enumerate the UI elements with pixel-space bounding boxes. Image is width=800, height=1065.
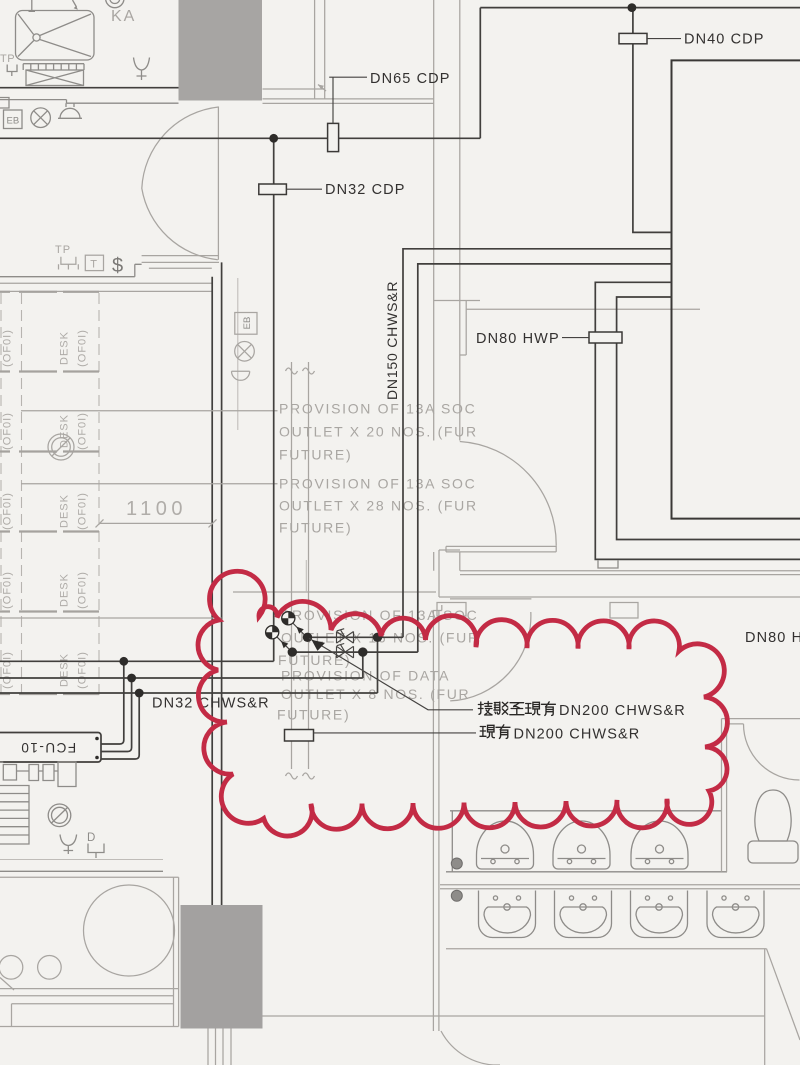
svg-text:(OF0I): (OF0I) <box>2 492 14 530</box>
svg-text:EB: EB <box>242 317 253 330</box>
svg-text:D: D <box>87 832 95 844</box>
svg-text:(OF0I): (OF0I) <box>2 651 14 689</box>
svg-text:DN80 H: DN80 H <box>745 630 800 646</box>
svg-text:KA: KA <box>111 8 136 25</box>
svg-text:DN65 CDP: DN65 CDP <box>370 71 451 87</box>
svg-text:DN200 CHWS&R: DN200 CHWS&R <box>559 703 686 719</box>
svg-text:FUTURE): FUTURE) <box>279 447 352 463</box>
svg-text:$: $ <box>112 255 123 277</box>
svg-text:DESK: DESK <box>59 331 71 365</box>
svg-text:DN32 CDP: DN32 CDP <box>325 182 406 198</box>
svg-text:PROVISION OF DATA: PROVISION OF DATA <box>281 668 450 684</box>
svg-text:OUTLET X 20 NOS. (FUR: OUTLET X 20 NOS. (FUR <box>279 424 478 440</box>
svg-text:TP: TP <box>55 244 71 256</box>
svg-text:(OF0I): (OF0I) <box>77 329 89 367</box>
svg-text:PROVISION OF 13A SOC: PROVISION OF 13A SOC <box>279 476 476 492</box>
svg-text:(OF0I): (OF0I) <box>77 651 89 689</box>
svg-text:FCU-10: FCU-10 <box>20 740 76 755</box>
svg-text:DN200 CHWS&R: DN200 CHWS&R <box>514 727 641 743</box>
svg-text:DESK: DESK <box>59 653 71 687</box>
svg-text:EB: EB <box>7 116 20 127</box>
svg-text:OUTLET X 28 NOS. (FUR: OUTLET X 28 NOS. (FUR <box>279 498 478 514</box>
svg-text:(OF0I): (OF0I) <box>77 492 89 530</box>
svg-text:(OF0I): (OF0I) <box>2 571 14 609</box>
svg-text:PROVISION OF 13A SOC: PROVISION OF 13A SOC <box>279 401 476 417</box>
svg-text:DESK: DESK <box>59 494 71 528</box>
svg-text:DN150 CHWS&R: DN150 CHWS&R <box>384 281 400 400</box>
svg-text:FUTURE): FUTURE) <box>277 707 350 723</box>
svg-text:(OF0I): (OF0I) <box>77 412 89 450</box>
svg-text:FUTURE): FUTURE) <box>279 520 352 536</box>
svg-text:1100: 1100 <box>126 498 187 520</box>
svg-text:DN40 CDP: DN40 CDP <box>684 32 765 48</box>
svg-text:(OF0I): (OF0I) <box>77 571 89 609</box>
svg-text:T: T <box>90 259 97 271</box>
svg-text:TP: TP <box>0 53 15 65</box>
svg-text:DN80 HWP: DN80 HWP <box>476 331 560 347</box>
svg-text:(OF0I): (OF0I) <box>2 329 14 367</box>
svg-text:DN32 CHWS&R: DN32 CHWS&R <box>152 696 270 712</box>
svg-text:DESK: DESK <box>59 573 71 607</box>
svg-text:OUTLET X 8 NOS. (FUR: OUTLET X 8 NOS. (FUR <box>281 686 470 702</box>
svg-text:(OF0I): (OF0I) <box>2 412 14 450</box>
